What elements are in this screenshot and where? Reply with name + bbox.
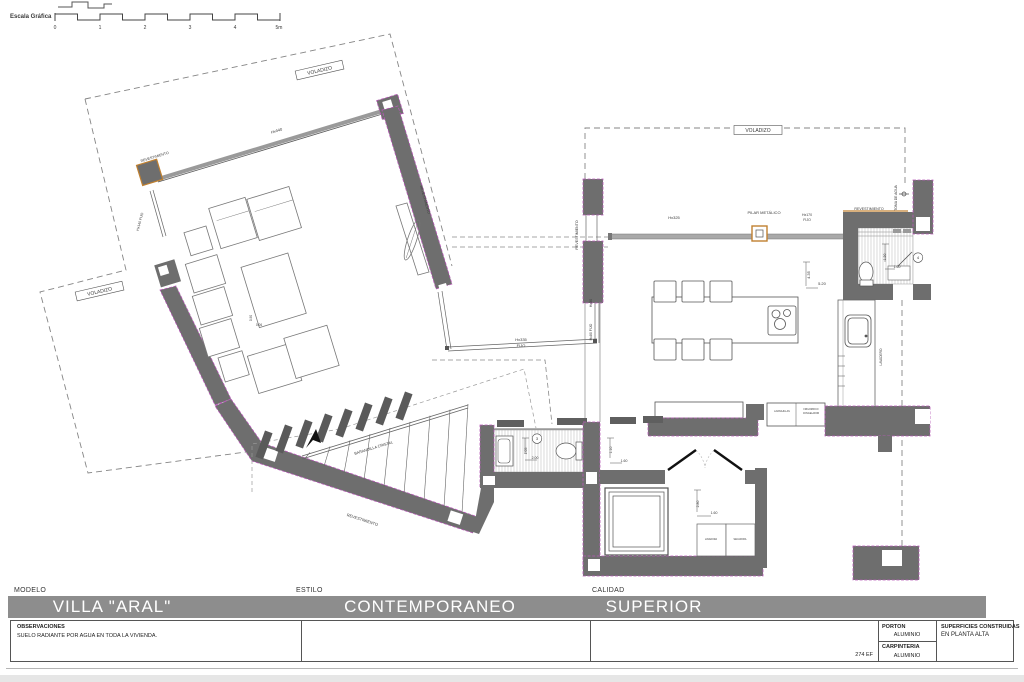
kitchen [652,262,875,426]
svg-text:FIJO: FIJO [803,218,811,222]
carpinteria-label: CARPINTERIA [882,644,920,650]
observaciones-text: SUELO RADIANTE POR AGUA EN TODA LA VIVIE… [17,633,157,639]
svg-text:REVESTIMIENTO: REVESTIMIENTO [346,512,379,527]
model-name: VILLA "ARAL" [53,597,172,617]
plan-ref: 274 EF [811,652,873,658]
title-block-table: OBSERVACIONES SUELO RADIANTE POR AGUA EN… [10,620,1014,662]
svg-text:5m: 5m [276,25,283,31]
svg-text:Hx170: Hx170 [802,213,812,217]
svg-text:4.35: 4.35 [806,270,811,279]
svg-text:PILAR METÁLICO: PILAR METÁLICO [747,210,780,215]
svg-text:2: 2 [144,25,147,31]
sheet-edge-mark [58,2,112,8]
svg-text:1.05: 1.05 [524,448,528,455]
svg-text:2.80: 2.80 [696,501,700,508]
svg-text:0.90: 0.90 [249,315,253,321]
svg-text:FIJO: FIJO [517,343,526,348]
svg-text:0.06: 0.06 [256,323,262,327]
svg-text:REVESTIMIENTO: REVESTIMIENTO [854,207,883,211]
kitchen-bottom-walls [648,404,930,580]
title-bar: VILLA "ARAL" CONTEMPORANEO SUPERIOR [8,596,986,618]
porton-value: ALUMINIO [878,632,936,638]
svg-text:Hx80: Hx80 [589,299,593,307]
divider [301,621,302,661]
divider [878,641,936,642]
superficies-label: SUPERFICIES CONSTRUIDAS [941,624,1020,630]
svg-text:Escala Gráfica: Escala Gráfica [10,14,52,20]
svg-text:VOLADIZO: VOLADIZO [87,286,113,298]
superficies-value: EN PLANTA ALTA [941,632,989,638]
svg-text:5.20: 5.20 [818,281,827,286]
plan-labels: Escala Gráfica012345mVOLADIZOVOLADIZOVOL… [10,14,923,541]
svg-text:1.20: 1.20 [883,254,887,261]
svg-text:1.60: 1.60 [894,265,901,269]
sheet-bottom-strip [0,675,1024,682]
porton-label: PORTON [882,624,905,630]
estilo-label: ESTILO [296,587,323,594]
svg-text:VOLADIZO: VOLADIZO [307,65,333,77]
svg-text:CONGELADOR: CONGELADOR [803,412,820,415]
sheet-bottom-line [6,668,1018,669]
svg-text:REVESTIMIENTO: REVESTIMIENTO [575,220,579,249]
bathroom-4 [843,180,933,300]
modelo-label: MODELO [14,587,46,594]
svg-text:Hx325: Hx325 [668,215,680,220]
svg-text:1.60: 1.60 [711,511,718,515]
quality-name: SUPERIOR [606,597,703,617]
style-name: CONTEMPORANEO [344,597,516,617]
svg-text:1: 1 [99,25,102,31]
svg-text:4: 4 [234,25,237,31]
carpinteria-value: ALUMINIO [878,653,936,659]
svg-text:TOMA DE AGUA: TOMA DE AGUA [894,184,898,210]
svg-text:LAVADERO: LAVADERO [879,348,883,365]
svg-text:VOLADIZO: VOLADIZO [745,128,770,134]
svg-text:2.00: 2.00 [532,456,539,460]
svg-text:LAVAVAJILLAS: LAVAVAJILLAS [774,410,790,413]
svg-text:1.60: 1.60 [621,459,628,463]
svg-text:3: 3 [189,25,192,31]
svg-text:Hx440: Hx440 [270,126,283,134]
svg-text:Hx335: Hx335 [515,337,527,342]
scale-bar [55,13,280,21]
calidad-label: CALIDAD [592,587,624,594]
floor-plan-sheet: Escala Gráfica012345mVOLADIZOVOLADIZOVOL… [0,0,1024,682]
divider [590,621,591,661]
divider [936,621,937,661]
svg-text:SECADORA: SECADORA [734,538,747,541]
svg-text:1.10: 1.10 [609,447,613,454]
floor-plan-canvas: Escala Gráfica012345mVOLADIZOVOLADIZOVOL… [0,0,1024,682]
svg-text:0: 0 [54,25,57,31]
overhang-connector-dashed [432,237,608,424]
svg-text:LAVADORA: LAVADORA [705,538,718,541]
svg-text:Hx140 FIJO: Hx140 FIJO [136,212,145,231]
observaciones-label: OBSERVACIONES [17,624,65,630]
svg-text:FRIGORIFICO: FRIGORIFICO [803,409,818,411]
svg-text:Hx80 FIJO: Hx80 FIJO [589,323,593,340]
living-furniture [184,186,429,393]
